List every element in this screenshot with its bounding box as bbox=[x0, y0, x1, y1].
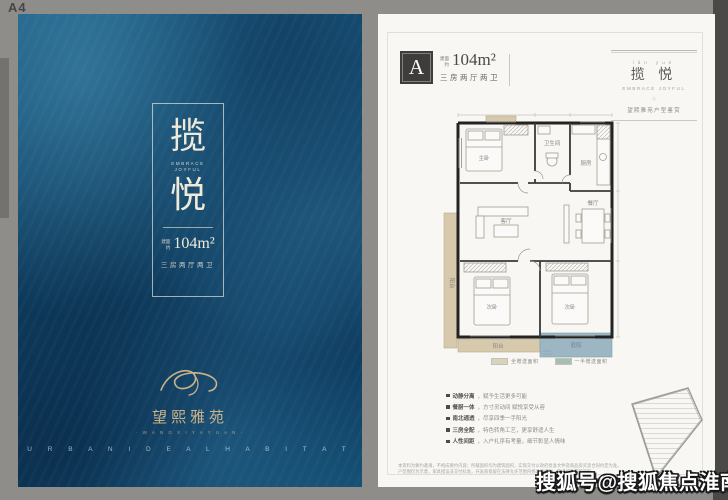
page-header: 建面 约 104m² 三房两厅两卫 bbox=[440, 51, 500, 83]
sohu-watermark: 搜狐号@搜狐焦点淮南站 bbox=[536, 466, 728, 495]
room-label-dining: 餐厅 bbox=[587, 199, 599, 207]
cover-divider bbox=[163, 227, 213, 228]
furniture bbox=[464, 125, 610, 325]
ribbon-knot-icon bbox=[155, 364, 225, 398]
unit-badge: A bbox=[400, 51, 433, 84]
cover-logo-block: 望熙雅苑 · W A N G X I Y A Y U A N · bbox=[18, 364, 362, 435]
cover-title-english: EMBRACE JOYFUL bbox=[153, 161, 223, 172]
masthead-rule-bottom bbox=[611, 120, 697, 121]
legend-item: 全赠送面积 bbox=[491, 358, 539, 365]
door-arcs bbox=[518, 171, 570, 271]
room-label-master: 主卧 bbox=[478, 154, 490, 162]
masthead: lǎn yuè 揽 悦 EMBRACE JOYFUL ◇ 望熙雅苑户型鉴赏 bbox=[606, 50, 702, 121]
legend-swatch-tan bbox=[491, 358, 508, 365]
room-label-bath: 卫生间 bbox=[544, 139, 561, 147]
bullet-icon bbox=[446, 417, 450, 421]
bullet-icon bbox=[446, 440, 450, 444]
header-divider bbox=[509, 54, 510, 86]
cover-title-char-1: 揽 bbox=[153, 116, 223, 156]
cover-area-prefix: 建面 约 bbox=[161, 239, 170, 252]
masthead-pinyin: lǎn yuè bbox=[606, 60, 702, 65]
header-area-prefix: 建面 约 bbox=[440, 56, 449, 69]
masthead-rule-top bbox=[611, 50, 697, 53]
room-label-balcony-side: 阳台 bbox=[448, 277, 456, 289]
room-label-patio: 庭院 bbox=[570, 341, 582, 349]
masthead-title: 揽 悦 bbox=[606, 67, 702, 84]
room-label-kitchen: 厨房 bbox=[580, 159, 592, 167]
masthead-tagline: 望熙雅苑户型鉴赏 bbox=[606, 106, 702, 114]
a4-size-label: A4 bbox=[8, 0, 27, 15]
bullet-icon bbox=[446, 394, 450, 398]
cover-area-value: 104m² bbox=[173, 235, 214, 252]
cover-footer-slogan: U R B A N I D E A L H A B I T A T bbox=[18, 446, 362, 453]
legend-swatch-green bbox=[555, 358, 572, 365]
room-label-bedroom2: 次卧 bbox=[486, 303, 498, 311]
screenshot-root: A4 揽 EMBRACE JOYFUL 悦 建面 约 104m² 三房两厅两卫 bbox=[0, 0, 728, 500]
cover-layout-text: 三房两厅两卫 bbox=[153, 259, 223, 269]
room-label-bedroom3: 次卧 bbox=[564, 303, 576, 311]
room-label-balcony-bottom: 阳台 bbox=[492, 342, 504, 350]
room-label-living: 客厅 bbox=[500, 217, 512, 225]
project-name-latin: · W A N G X I Y A Y U A N · bbox=[18, 430, 362, 435]
legend-item: 一半赠送面积 bbox=[555, 358, 608, 365]
bullet-icon bbox=[446, 428, 450, 432]
right-margin-strip bbox=[713, 0, 728, 500]
bullet-icon bbox=[446, 405, 450, 409]
cover-title-box: 揽 EMBRACE JOYFUL 悦 建面 约 104m² 三房两厅两卫 bbox=[152, 103, 224, 297]
left-edge-shadow bbox=[0, 58, 9, 218]
plan-legend: 全赠送面积 一半赠送面积 bbox=[491, 358, 608, 365]
cover-title-char-2: 悦 bbox=[153, 175, 223, 215]
header-area-value: 104m² bbox=[452, 51, 496, 69]
project-name: 望熙雅苑 bbox=[18, 406, 362, 427]
floorplan-page: A 建面 约 104m² 三房两厅两卫 lǎn yuè 揽 悦 EMBRACE … bbox=[378, 14, 715, 487]
cover-area: 建面 约 104m² bbox=[153, 235, 223, 252]
diamond-ornament-icon: ◇ bbox=[606, 96, 702, 102]
brochure-cover: 揽 EMBRACE JOYFUL 悦 建面 约 104m² 三房两厅两卫 望熙雅… bbox=[18, 14, 362, 487]
header-layout-text: 三房两厅两卫 bbox=[440, 72, 500, 83]
floorplan-drawing: 主卧 卫生间 厨房 客厅 餐厅 次卧 次卧 阳台 阳台 庭院 bbox=[440, 113, 620, 358]
masthead-subtitle: EMBRACE JOYFUL bbox=[606, 86, 702, 91]
